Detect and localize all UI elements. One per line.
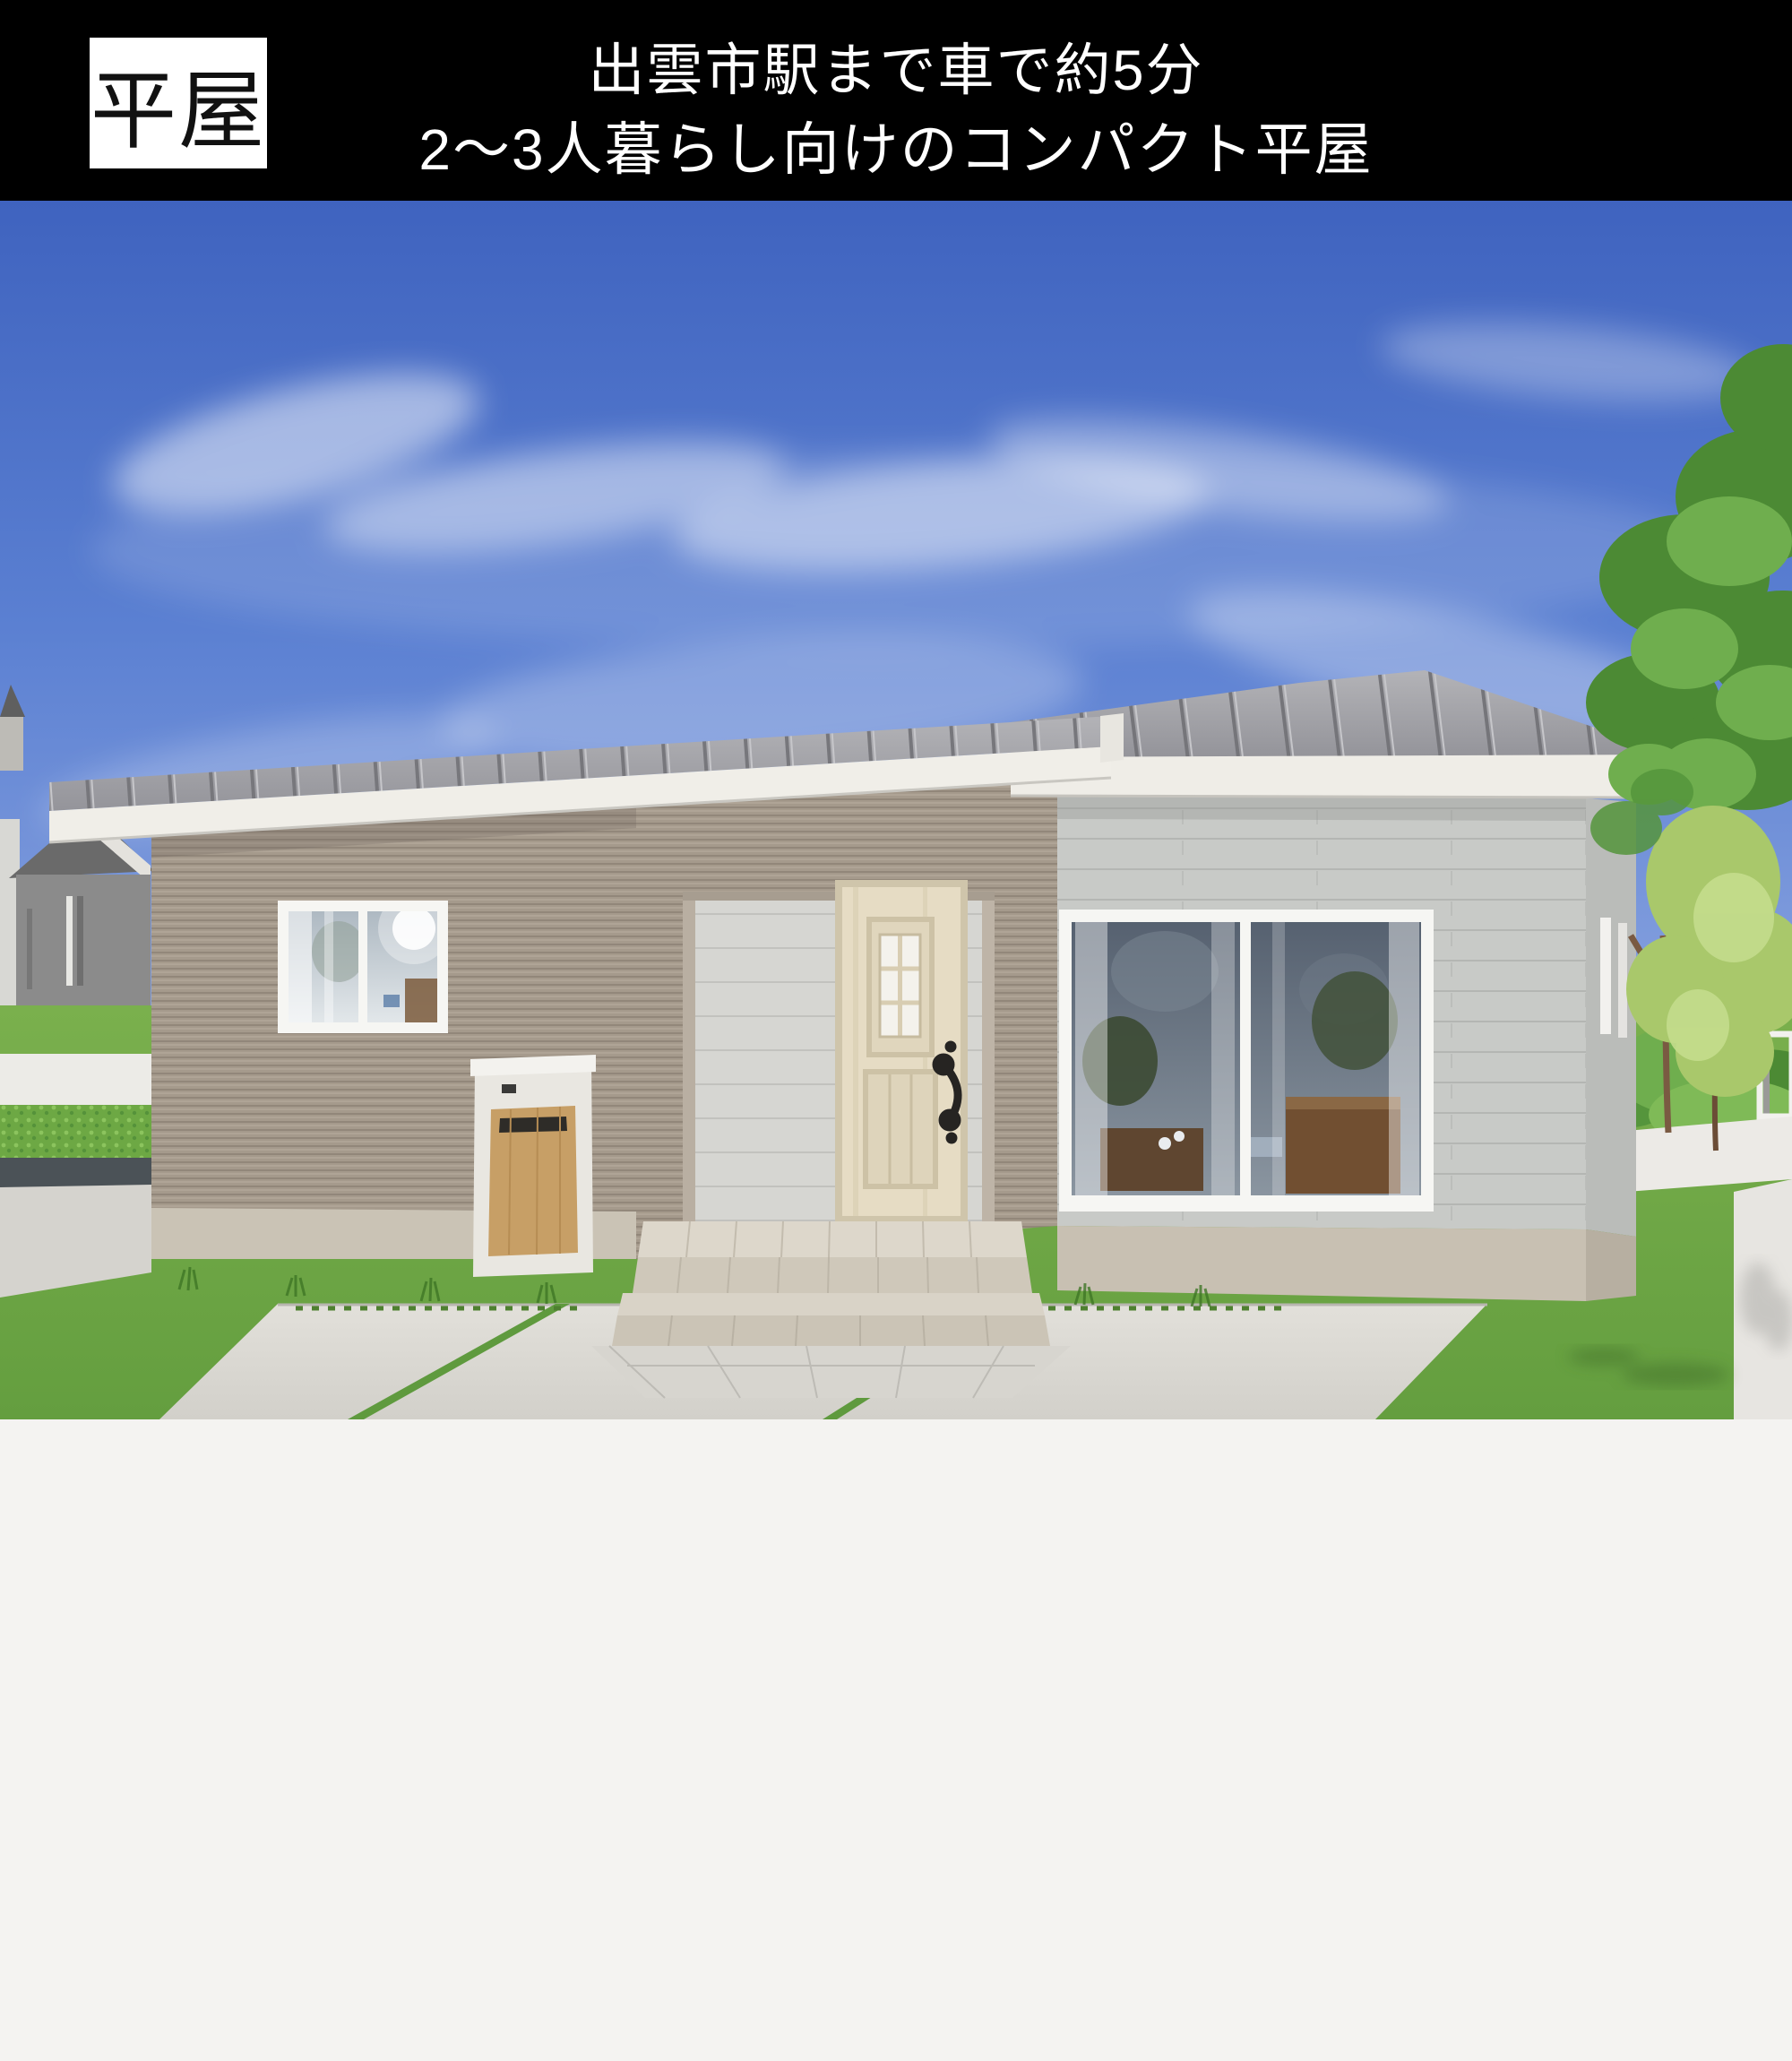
mailbox-post xyxy=(470,1055,596,1277)
house-photo xyxy=(0,201,1792,1419)
left-boundary xyxy=(0,1054,151,1298)
house-exterior-scene xyxy=(0,201,1792,1419)
bedroom-window xyxy=(278,893,450,1033)
living-room-window xyxy=(1059,910,1434,1212)
entrance-door xyxy=(835,880,968,1221)
banner-line-1: 出雲市駅まで車で約5分 xyxy=(0,25,1792,107)
info-section: 出雲市上塩冶町 塩冶小・第二中校区 ■建物おすすめポイント 勾配天井の広々16帖… xyxy=(0,1419,1792,2061)
top-banner: 平屋 出雲市駅まで車で約5分 2〜3人暮らし向けのコンパクト平屋 xyxy=(0,0,1792,201)
entrance-steps xyxy=(591,1221,1071,1398)
foundation-right xyxy=(1057,1226,1586,1301)
flyer-page: 平屋 出雲市駅まで車で約5分 2〜3人暮らし向けのコンパクト平屋 xyxy=(0,0,1792,2061)
banner-line-2: 2〜3人暮らし向けのコンパクト平屋 xyxy=(0,104,1792,186)
